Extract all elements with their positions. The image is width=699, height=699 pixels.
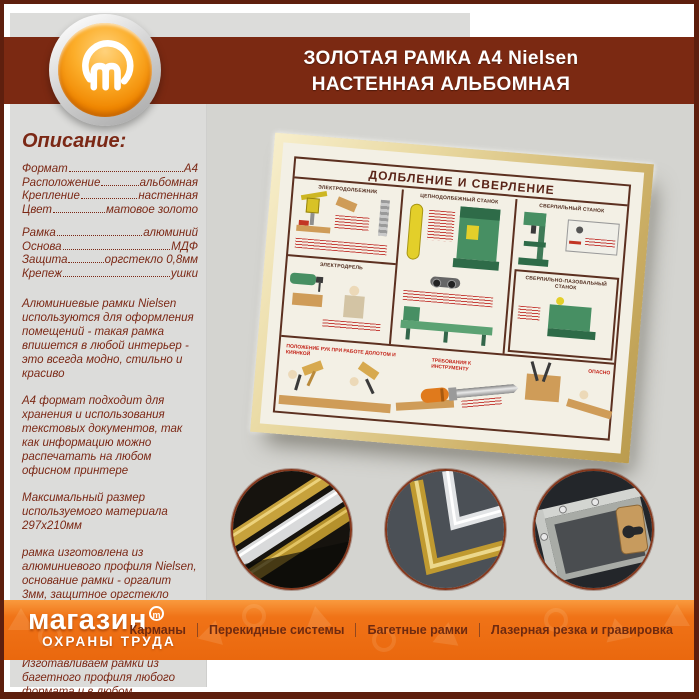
part: [306, 198, 320, 214]
annotation-marks: [403, 290, 494, 307]
poster-red-label: ОПАСНО: [568, 367, 610, 376]
dotted-leader: [57, 235, 142, 236]
framed-poster-photo[interactable]: ДОЛБЛЕНИЕ И СВЕРЛЕНИЕ ЭЛЕКТРОДОЛБЕЖНИК: [250, 133, 654, 464]
poster-paper: ДОЛБЛЕНИЕ И СВЕРЛЕНИЕ ЭЛЕКТРОДОЛБЕЖНИК: [260, 142, 644, 453]
description-paragraph: Изготавливаем рамки из багетного профиля…: [22, 657, 198, 699]
dotted-leader: [101, 185, 138, 186]
illustration-diagram: [565, 219, 619, 255]
dotted-leader: [69, 171, 183, 172]
description-paragraph: Алюминиевые рамки Nielsen используются д…: [22, 297, 198, 381]
footer-bar: магазин m ОХРАНЫ ТРУДА Карманы Перекидны…: [4, 600, 694, 660]
nav-item-baguette-frames[interactable]: Багетные рамки: [355, 623, 478, 637]
spec-label: Формат: [22, 163, 68, 177]
part: [420, 387, 449, 403]
spec-row: Расположениеальбомная: [22, 177, 198, 191]
illustration-chain-links: [378, 200, 390, 237]
spec-row: ФорматА4: [22, 163, 198, 177]
dotted-leader: [81, 198, 137, 199]
description-heading: Описание:: [22, 130, 198, 153]
part: [296, 225, 330, 234]
detail-photo-frame-back-hangers[interactable]: [533, 469, 654, 590]
illustration-machine-box: [403, 306, 420, 321]
dotted-leader: [63, 249, 171, 250]
poster-col-mortiser: ЭЛЕКТРОДОЛБЕЖНИК: [281, 180, 404, 344]
part: [318, 283, 321, 292]
dotted-leader: [63, 276, 170, 277]
part: [530, 225, 536, 233]
part: [448, 387, 457, 401]
part: [288, 370, 298, 380]
detail-photo-frame-corners[interactable]: [385, 469, 506, 590]
illustration-wood-block: [292, 293, 323, 307]
aluminum-profiles-photo: [233, 471, 350, 588]
spec-value: ушки: [171, 268, 198, 282]
illustration-drill-press-head: [523, 212, 546, 227]
illustration-chain-bar: [406, 203, 424, 260]
spec-label: Крепеж: [22, 268, 62, 282]
illustration-milling-machine: [548, 304, 592, 331]
dotted-leader: [68, 262, 103, 263]
spec-row: Цветматовое золото: [22, 204, 198, 218]
spec-label: Расположение: [22, 177, 100, 191]
annotation-marks: [517, 306, 540, 322]
page-root: ЗОЛОТАЯ РАМКА А4 Nielsen НАСТЕННАЯ АЛЬБО…: [0, 0, 699, 699]
spec-label: Рамка: [22, 227, 56, 241]
magazin-logo[interactable]: [49, 14, 161, 126]
illustration-wood-piece: [336, 196, 358, 212]
poster-section-label: СВЕРЛИЛЬНО-ПАЗОВАЛЬНЫЙ СТАНОК: [515, 274, 617, 294]
annotation-marks: [585, 238, 616, 248]
detail-photo-aluminum-profiles[interactable]: [231, 469, 352, 590]
part: [518, 257, 548, 266]
spec-row: Рамкаалюминий: [22, 227, 198, 241]
illustration-worker-body: [343, 295, 365, 319]
part: [443, 331, 448, 342]
description-paragraph: Максимальный размер используемого матери…: [22, 491, 198, 533]
annotation-marks: [322, 319, 380, 332]
poster-col-chain-mortiser: ЦЕПНОДОЛБЕЖНЫЙ СТАНОК: [391, 190, 517, 354]
spec-label: Защита: [22, 254, 67, 268]
part: [576, 226, 584, 234]
illustration-electric-mortiser: [296, 192, 333, 235]
annotation-marks: [461, 397, 502, 409]
part: [406, 328, 411, 339]
magazin-logo-circle: [58, 23, 152, 117]
part: [579, 390, 589, 400]
illustration-board: [566, 398, 612, 419]
product-title-line2: НАСТЕННАЯ АЛЬБОМНАЯ: [194, 72, 688, 98]
nav-item-flip-systems[interactable]: Перекидные системы: [197, 623, 355, 637]
part: [454, 384, 519, 399]
part: [556, 297, 565, 306]
annotation-marks: [334, 215, 369, 232]
page-title: ЗОЛОТАЯ РАМКА А4 Nielsen НАСТЕННАЯ АЛЬБО…: [194, 46, 688, 98]
frame-corners-photo: [387, 471, 504, 588]
spec-value: альбомная: [140, 177, 198, 191]
spec-label: Цвет: [22, 204, 52, 218]
spec-list: ФорматА4 Расположениеальбомная Крепление…: [22, 163, 198, 281]
part: [523, 241, 545, 248]
spec-value: оргстекло 0,8мм: [105, 254, 198, 268]
spec-value: матовое золото: [106, 204, 198, 218]
spec-value: настенная: [138, 190, 198, 204]
brand-mark-icon: m: [149, 606, 164, 621]
poster-red-label: ТРЕБОВАНИЯ К ИНСТРУМЕНТУ: [431, 358, 504, 376]
part: [569, 241, 581, 245]
annotation-marks: [295, 238, 388, 256]
frame-back-hangers-photo: [535, 471, 652, 588]
nav-item-pockets[interactable]: Карманы: [119, 623, 197, 637]
spec-value: МДФ: [171, 241, 198, 255]
annotation-marks: [427, 210, 455, 242]
footer-nav: Карманы Перекидные системы Багетные рамк…: [119, 623, 684, 637]
spec-row: Креплениенастенная: [22, 190, 198, 204]
illustration-electric-drill: [290, 272, 317, 285]
product-photo-area: ДОЛБЛЕНИЕ И СВЕРЛЕНИЕ ЭЛЕКТРОДОЛБЕЖНИК: [207, 104, 694, 601]
spec-row: Крепежушки: [22, 268, 198, 282]
poster-content: ДОЛБЛЕНИЕ И СВЕРЛЕНИЕ ЭЛЕКТРОДОЛБЕЖНИК: [273, 156, 631, 440]
spec-row: Защитаоргстекло 0,8мм: [22, 254, 198, 268]
nav-item-laser-engraving[interactable]: Лазерная резка и гравировка: [479, 623, 684, 637]
poster-grid: ЭЛЕКТРОДОЛБЕЖНИК: [281, 180, 627, 362]
part: [349, 377, 359, 387]
spec-label: Основа: [22, 241, 62, 255]
dotted-leader: [53, 212, 105, 213]
spec-label: Крепление: [22, 190, 80, 204]
spec-row: ОсноваМДФ: [22, 241, 198, 255]
poster-inner-box: СВЕРЛИЛЬНО-ПАЗОВАЛЬНЫЙ СТАНОК: [507, 269, 619, 361]
spec-value: алюминий: [143, 227, 198, 241]
part: [481, 335, 486, 346]
part: [466, 225, 479, 240]
part: [310, 213, 315, 225]
part: [365, 379, 375, 395]
part: [358, 361, 380, 380]
product-title-line1: ЗОЛОТАЯ РАМКА А4 Nielsen: [194, 46, 688, 72]
magazin-m-icon: [72, 35, 138, 101]
description-paragraph: А4 формат подходит для хранения и исполь…: [22, 394, 198, 478]
spec-value: А4: [184, 163, 198, 177]
poster-col-drill-press: СВЕРЛИЛЬНЫЙ СТАНОК: [504, 199, 627, 363]
